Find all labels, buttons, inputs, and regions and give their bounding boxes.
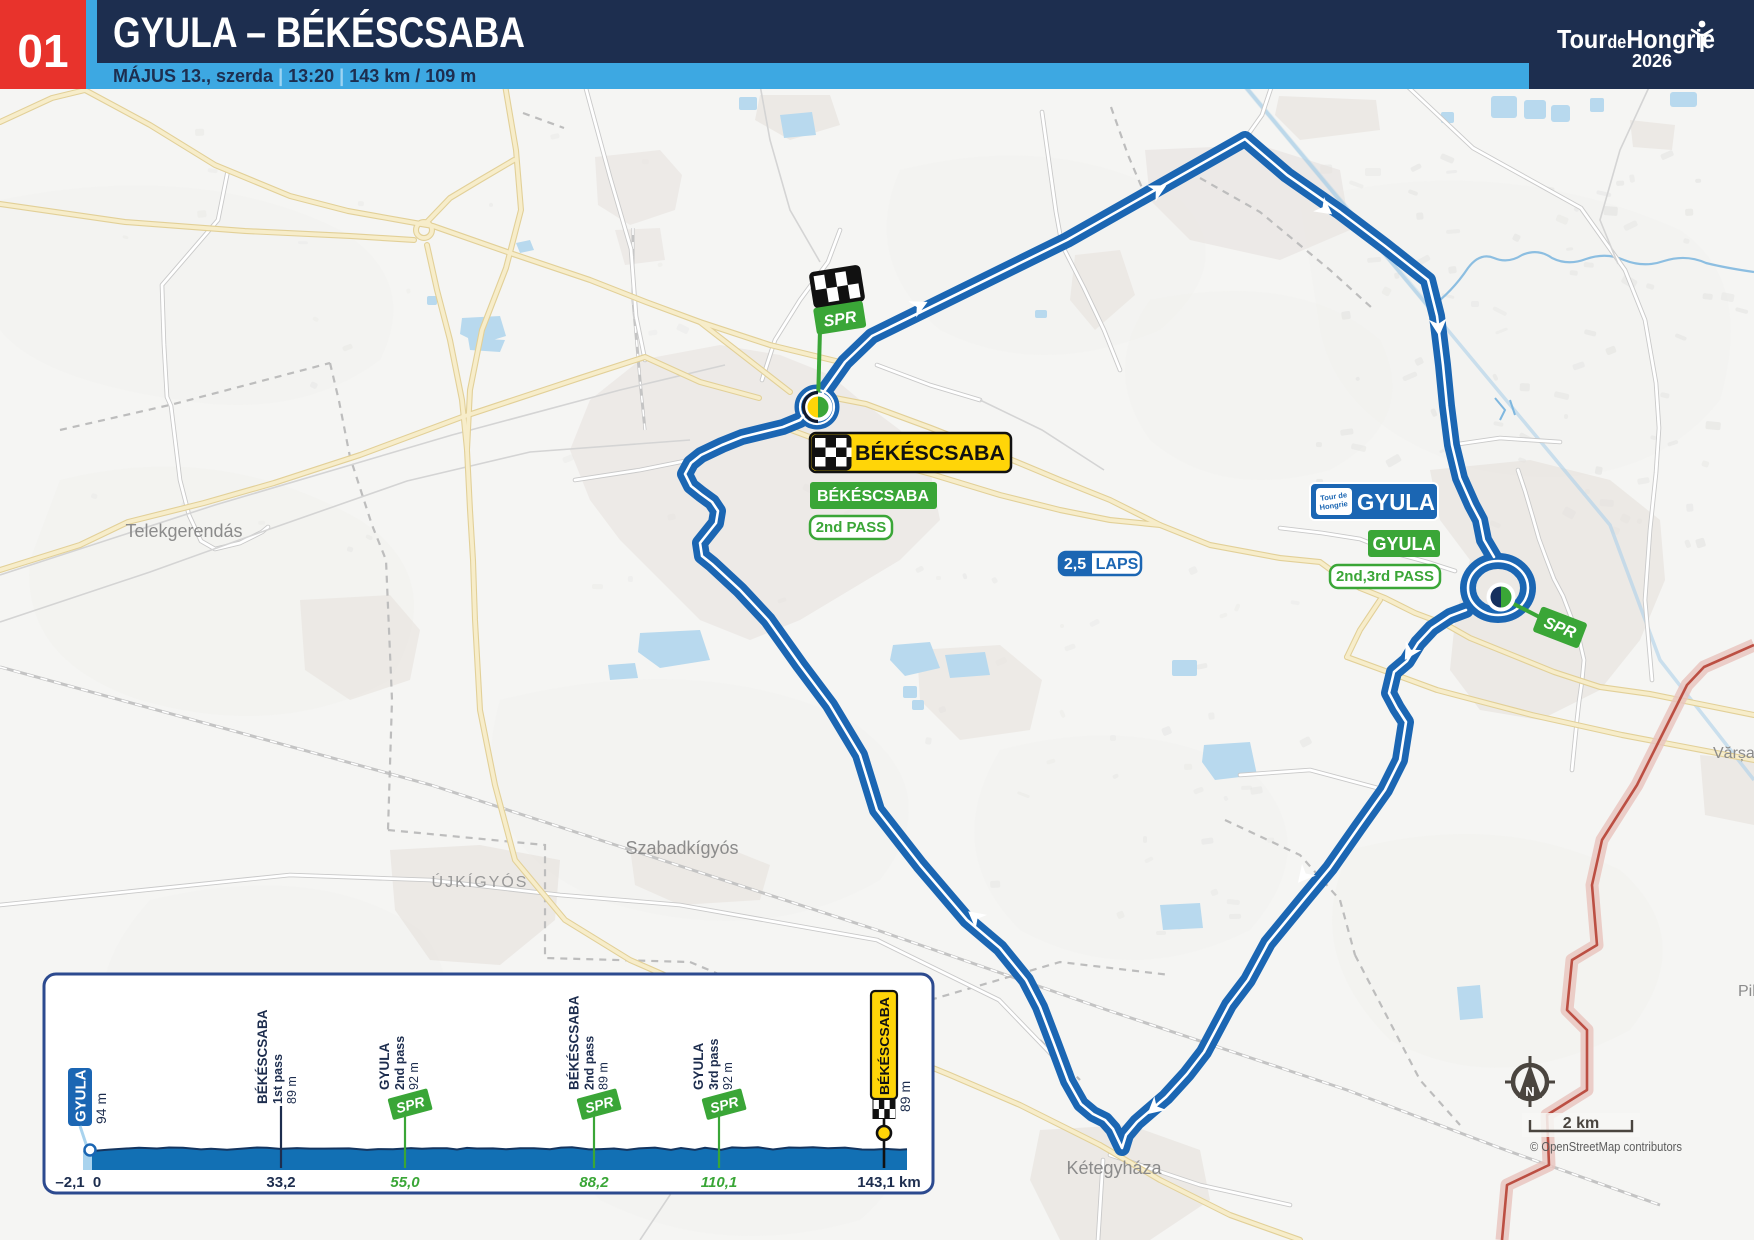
svg-text:BÉKÉSCSABA: BÉKÉSCSABA: [855, 442, 1005, 465]
svg-text:55,0: 55,0: [390, 1174, 420, 1191]
svg-text:BÉKÉSCSABA: BÉKÉSCSABA: [255, 1009, 270, 1104]
svg-text:Szabadkígyós: Szabadkígyós: [625, 838, 738, 858]
svg-text:143,1 km: 143,1 km: [857, 1174, 920, 1191]
svg-text:2 km: 2 km: [1563, 1115, 1599, 1132]
svg-text:2nd,3rd PASS: 2nd,3rd PASS: [1336, 568, 1434, 585]
svg-text:2nd pass: 2nd pass: [393, 1036, 407, 1090]
svg-text:88,2: 88,2: [579, 1174, 609, 1191]
svg-text:1st pass: 1st pass: [271, 1054, 285, 1104]
svg-text:92 m: 92 m: [721, 1062, 735, 1090]
svg-text:MÁJUS 13., szerda | 13:20 | 14: MÁJUS 13., szerda | 13:20 | 143 km / 109…: [113, 65, 476, 86]
svg-text:89 m: 89 m: [596, 1062, 610, 1090]
svg-text:33,2: 33,2: [266, 1174, 295, 1191]
svg-text:2nd pass: 2nd pass: [582, 1036, 596, 1090]
svg-text:Vărșa: Vărșa: [1713, 745, 1754, 762]
svg-text:BÉKÉSCSABA: BÉKÉSCSABA: [566, 995, 581, 1090]
svg-text:0: 0: [93, 1174, 101, 1191]
svg-text:3rd pass: 3rd pass: [707, 1039, 721, 1090]
svg-text:110,1: 110,1: [701, 1174, 737, 1191]
svg-text:01: 01: [17, 25, 68, 77]
svg-text:BÉKÉSCSABA: BÉKÉSCSABA: [877, 996, 892, 1095]
svg-text:GYULA: GYULA: [377, 1042, 392, 1090]
svg-text:2nd PASS: 2nd PASS: [816, 519, 887, 536]
svg-text:94 m: 94 m: [93, 1093, 109, 1124]
svg-text:GYULA: GYULA: [73, 1069, 90, 1122]
svg-text:BÉKÉSCSABA: BÉKÉSCSABA: [817, 486, 929, 505]
svg-text:ÚJKÍGYÓS: ÚJKÍGYÓS: [432, 872, 529, 891]
svg-text:92 m: 92 m: [407, 1062, 421, 1090]
svg-text:89 m: 89 m: [897, 1081, 913, 1112]
svg-text:GYULA: GYULA: [691, 1042, 706, 1090]
svg-text:GYULA: GYULA: [1373, 534, 1436, 554]
svg-text:N: N: [1525, 1084, 1534, 1099]
svg-text:Pil: Pil: [1738, 983, 1754, 1000]
svg-text:GYULA – BÉKÉSCSABA: GYULA – BÉKÉSCSABA: [113, 9, 525, 57]
svg-text:Kétegyháza: Kétegyháza: [1066, 1158, 1162, 1178]
svg-text:TourdeHongrie: TourdeHongrie: [1557, 24, 1715, 54]
svg-text:89 m: 89 m: [285, 1076, 299, 1104]
svg-text:2,5: 2,5: [1064, 556, 1086, 573]
svg-text:2026: 2026: [1632, 51, 1672, 71]
svg-text:–2,1: –2,1: [55, 1174, 84, 1191]
svg-text:GYULA: GYULA: [1357, 489, 1435, 515]
svg-text:LAPS: LAPS: [1096, 556, 1139, 573]
svg-text:Telekgerendás: Telekgerendás: [125, 521, 242, 541]
svg-text:© OpenStreetMap contributors: © OpenStreetMap contributors: [1530, 1139, 1682, 1154]
